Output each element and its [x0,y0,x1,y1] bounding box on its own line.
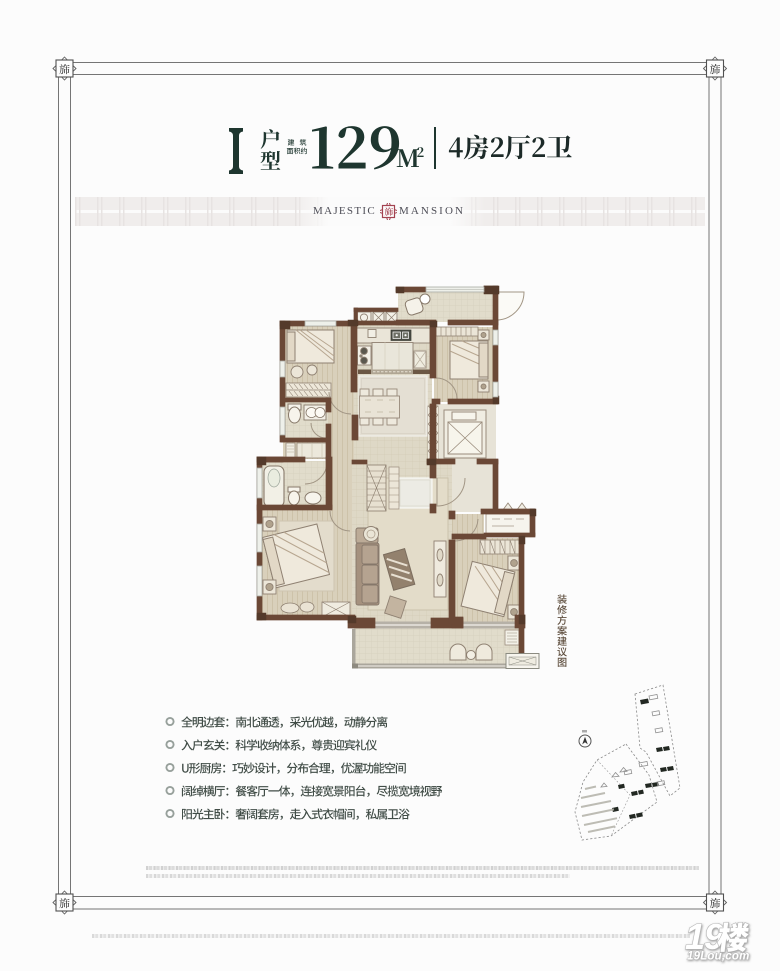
svg-text:19Lou,com: 19Lou,com [687,951,750,963]
